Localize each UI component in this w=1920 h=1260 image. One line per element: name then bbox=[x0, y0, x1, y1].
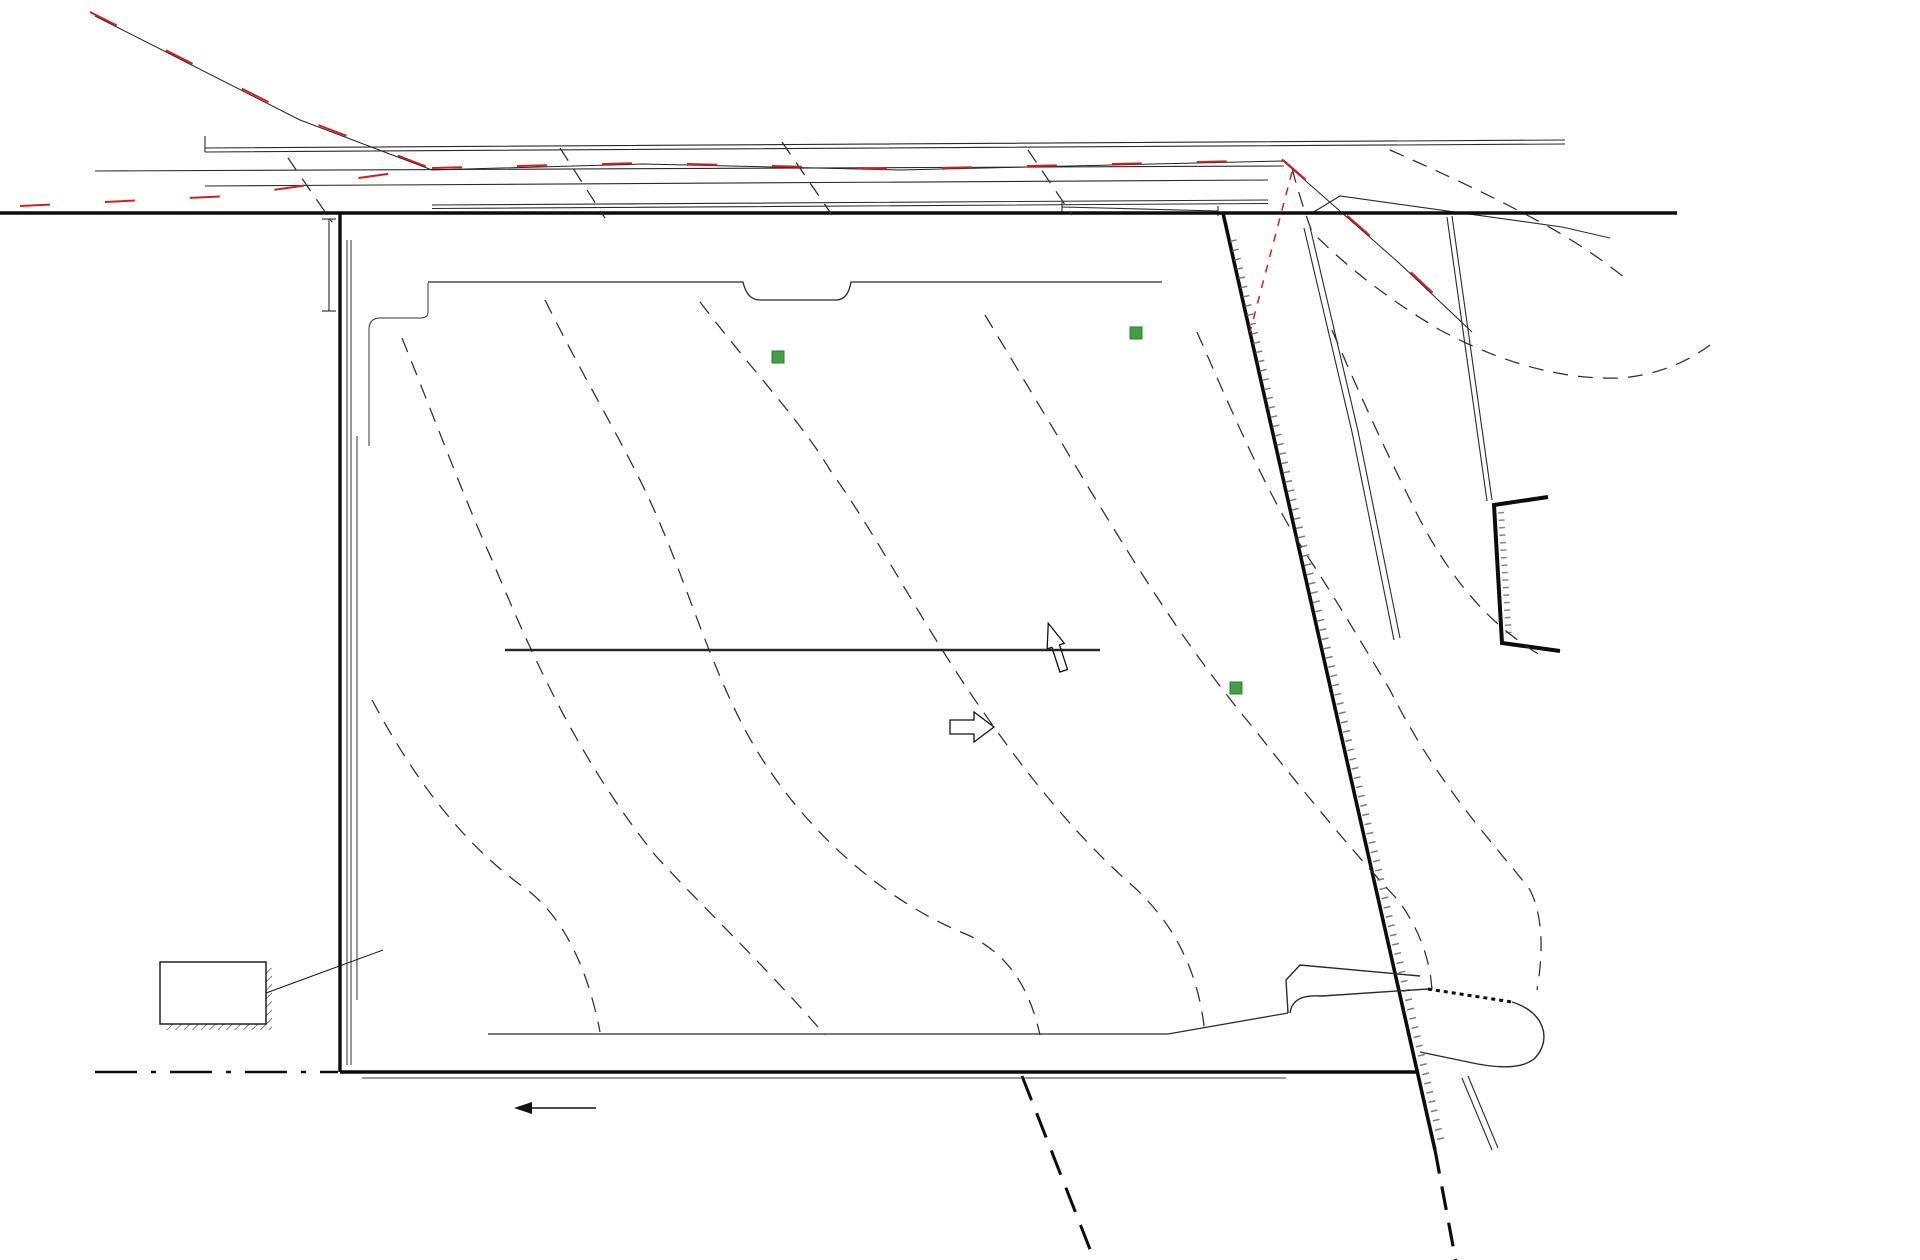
parking-edges bbox=[428, 282, 1288, 1034]
road-curb-lines bbox=[95, 136, 1610, 238]
flow-arrow-up bbox=[1040, 620, 1073, 673]
south-bearing-arrow bbox=[514, 1102, 596, 1114]
utility-wires bbox=[20, 12, 1472, 332]
point-symbols bbox=[772, 327, 1242, 694]
contour-lines bbox=[288, 142, 1710, 1035]
drain-inlet-icon bbox=[1230, 682, 1242, 694]
survey-site-plan bbox=[0, 0, 1920, 1260]
drain-inlet-icon bbox=[772, 351, 784, 363]
site-plan-drawing bbox=[0, 0, 1920, 1260]
flow-arrow-right bbox=[950, 712, 994, 742]
drain-inlet-icon bbox=[1130, 327, 1142, 339]
fence-lines bbox=[347, 240, 1286, 1078]
property-boundary bbox=[0, 213, 1677, 1260]
fixed-markers bbox=[160, 219, 1072, 1114]
driveway-curbs bbox=[1304, 216, 1492, 640]
benchmark-box bbox=[160, 950, 383, 1030]
dimension-150-line bbox=[322, 219, 336, 311]
